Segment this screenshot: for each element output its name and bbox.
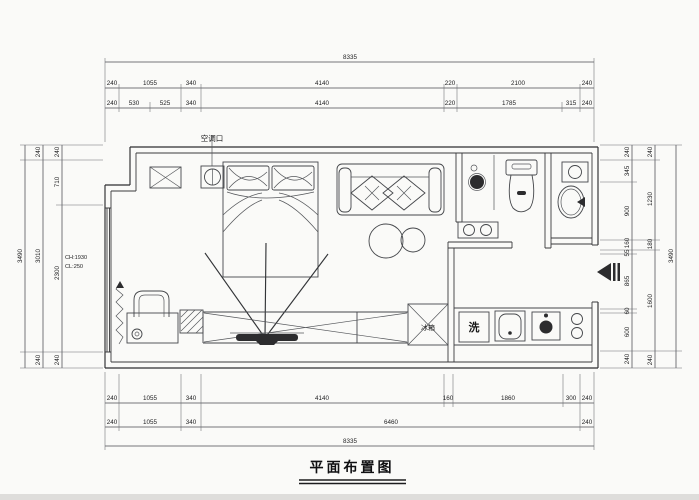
shower: [469, 155, 495, 210]
dim-right-outer: 240: [647, 354, 654, 365]
exterior-walls: [105, 147, 598, 368]
dim-top-r2: 240: [582, 80, 593, 87]
dim-bot-r2: 6460: [384, 419, 399, 426]
window-height-note: CH:1930: [65, 255, 87, 261]
radiator-zigzag: [116, 281, 124, 344]
dim-bot-r1: 4140: [315, 395, 330, 402]
dim-right-inner: 55: [624, 249, 631, 257]
dim-right-inner: 900: [624, 205, 631, 216]
dim-left-mid: 3010: [35, 249, 42, 264]
dim-bot-r1: 240: [107, 395, 118, 402]
top-dimension-block: 8335 240 1055 340 4140 220 2100 240 240 …: [105, 54, 594, 142]
dim-right-inner: 240: [624, 353, 631, 364]
dim-right-outer: 1600: [647, 294, 654, 309]
dim-bot-r2: 240: [582, 419, 593, 426]
dim-bot-r1: 240: [582, 395, 593, 402]
dim-bot-r1: 300: [566, 395, 577, 402]
dim-right-outer: 240: [647, 146, 654, 157]
dim-right-inner: 345: [624, 165, 631, 176]
dim-left-overall: 3490: [17, 249, 24, 264]
dim-top-r3: 240: [107, 100, 118, 107]
dim-top-r3: 4140: [315, 100, 330, 107]
bottom-dimension-block: 240 1055 340 4140 160 1860 300 240 240 1…: [105, 372, 594, 450]
coffee-tables: [369, 224, 425, 258]
dim-top-overall: 8335: [343, 54, 358, 61]
dim-top-r3: 1785: [502, 100, 517, 107]
dim-bot-r1: 160: [443, 395, 454, 402]
dim-right-overall: 3490: [668, 249, 675, 264]
entrance-arrow: [597, 263, 620, 281]
right-dimension-block: 240 345 900 160 55 865 60 600 240 240 12…: [600, 145, 682, 368]
dim-top-r2: 4140: [315, 80, 330, 87]
ac-vent-label: 空调口: [201, 133, 224, 143]
dim-top-r2: 340: [186, 80, 197, 87]
bed: [223, 162, 318, 277]
dim-top-r3: 340: [186, 100, 197, 107]
washbasin: [558, 162, 588, 218]
left-dimension-block: 3490 240 3010 240 240 710 2300 240 CH:19…: [17, 145, 103, 368]
dim-top-r2: 1055: [143, 80, 158, 87]
dim-top-r3: 240: [582, 100, 593, 107]
dim-left-inner: 710: [54, 176, 61, 187]
hatched-wall-segment: [180, 310, 203, 333]
kitchen-sink: [495, 311, 525, 341]
washing-machine: 洗: [459, 312, 489, 342]
dim-right-inner: 865: [624, 275, 631, 286]
ac-vent: 空调口: [201, 133, 224, 188]
title-block: 平面布置图: [299, 459, 406, 484]
floor-plan-drawing: 8335 240 1055 340 4140 220 2100 240 240 …: [0, 0, 699, 500]
tv-cabinet: [203, 312, 408, 345]
desk: [127, 313, 178, 343]
dim-right-inner: 600: [624, 326, 631, 337]
dim-right-outer: 1230: [647, 192, 654, 207]
dim-top-r3: 315: [566, 100, 577, 107]
dim-right-inner: 160: [624, 237, 631, 248]
washing-machine-label: 洗: [469, 320, 480, 334]
dim-bottom-overall: 8335: [343, 438, 358, 445]
dim-left-mid: 240: [35, 354, 42, 365]
dim-bot-r2: 1055: [143, 419, 158, 426]
window-sill-note: CL:250: [65, 264, 83, 270]
dim-bot-r2: 240: [107, 419, 118, 426]
dim-top-r3: 530: [129, 100, 140, 107]
toilet: [506, 160, 537, 212]
dim-top-r2: 2100: [511, 80, 526, 87]
floor-plan-sheet: 8335 240 1055 340 4140 220 2100 240 240 …: [0, 0, 699, 500]
page-edge: [0, 494, 699, 500]
dim-right-outer: 180: [647, 238, 654, 249]
window: [105, 208, 111, 352]
basin-counter: [458, 222, 498, 238]
sofa: [337, 164, 444, 215]
dim-right-inner: 60: [624, 307, 631, 315]
dim-top-r3: 525: [160, 100, 171, 107]
refrigerator: 冰箱: [408, 304, 448, 345]
dim-top-r2: 240: [107, 80, 118, 87]
dim-bot-r1: 1055: [143, 395, 158, 402]
stove: [532, 312, 560, 340]
dim-bot-r1: 1860: [501, 395, 516, 402]
dim-bot-r1: 340: [186, 395, 197, 402]
dim-top-r2: 220: [445, 80, 456, 87]
dim-left-inner: 2300: [54, 266, 61, 281]
dim-left-inner: 240: [54, 146, 61, 157]
dim-top-r3: 220: [445, 100, 456, 107]
burner-knobs: [572, 314, 583, 339]
dim-left-inner: 240: [54, 354, 61, 365]
refrigerator-label: 冰箱: [421, 323, 435, 332]
dim-left-mid: 240: [35, 146, 42, 157]
dim-bot-r2: 340: [186, 419, 197, 426]
wardrobe-shaft: [150, 167, 181, 188]
dim-right-inner: 240: [624, 146, 631, 157]
drawing-title: 平面布置图: [310, 459, 395, 475]
